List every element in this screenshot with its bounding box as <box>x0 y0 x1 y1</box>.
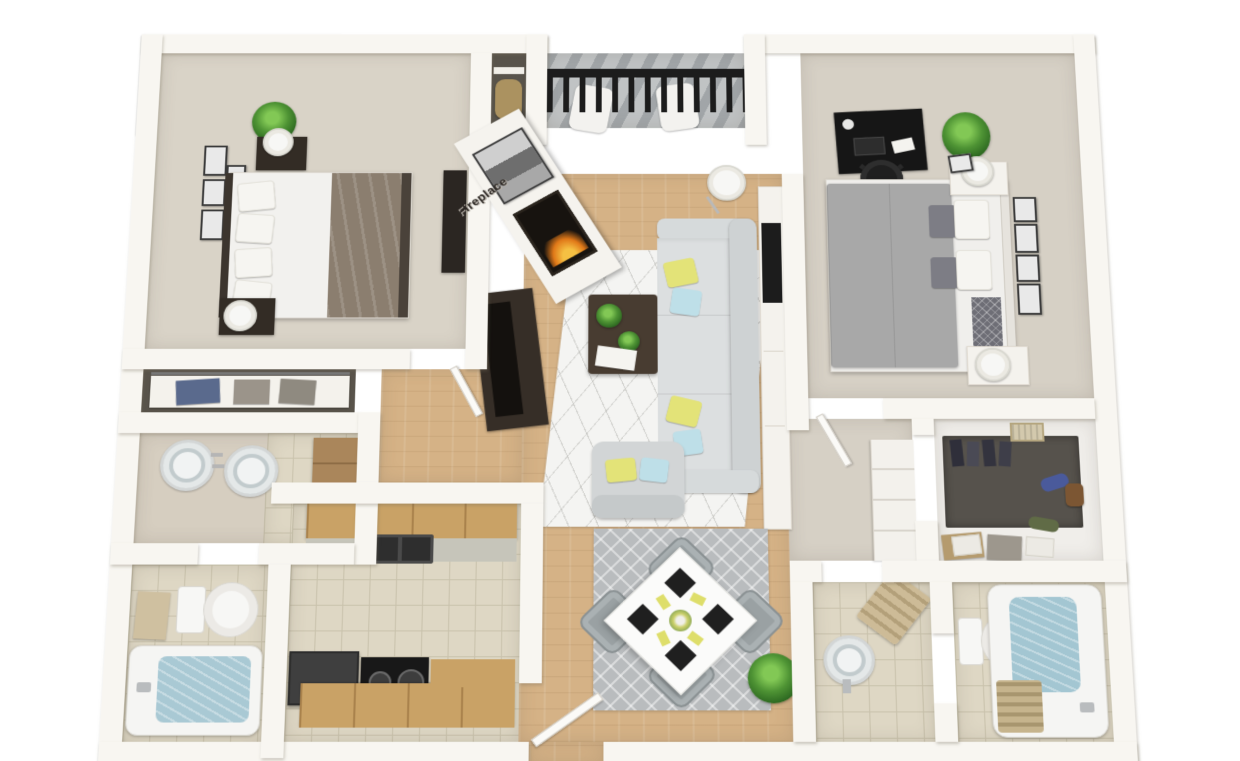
wall-vanity-bottom <box>110 543 198 564</box>
floorplan-scene: Fireplace <box>0 0 1240 761</box>
sink-faucet <box>212 464 224 468</box>
balcony-railing <box>547 71 745 113</box>
placemat <box>664 568 696 598</box>
bath-water <box>1009 597 1081 692</box>
floor-lamp <box>707 165 746 201</box>
bed-pillow <box>234 247 272 278</box>
table-plant <box>596 304 622 328</box>
placemat <box>665 640 697 671</box>
napkin-yellow <box>656 630 670 646</box>
wall-bedroom1-bottom <box>122 349 410 369</box>
throw-pillow-yellow <box>605 457 638 483</box>
bathtub <box>125 645 264 735</box>
lower-cabinets <box>299 683 515 727</box>
table-lamp <box>974 348 1011 381</box>
wall-art-frame <box>1015 255 1040 282</box>
handbag <box>1065 483 1084 506</box>
placemat <box>702 604 734 635</box>
wall-vanity-bottom <box>258 543 354 564</box>
wall-bedroom2-bottom <box>883 398 1095 419</box>
napkin-yellow <box>687 631 704 646</box>
sink-faucet <box>843 679 852 693</box>
pedestal-sink <box>823 635 876 685</box>
railing-top-bar <box>547 69 744 78</box>
wall-kitchen-right <box>519 504 543 684</box>
wall-art-frame <box>1017 284 1042 315</box>
counter-right <box>430 659 515 687</box>
bed-bedroom1 <box>223 172 412 318</box>
basket <box>1010 423 1045 442</box>
sink-divider <box>398 536 403 561</box>
bed-pillow <box>235 213 275 244</box>
storage-box-gray <box>987 534 1022 561</box>
sink-faucet <box>211 453 223 457</box>
tub-faucet <box>136 682 151 692</box>
linen-shelves <box>870 440 917 561</box>
wall-walkin-left <box>915 521 939 561</box>
taupe-duvet <box>327 173 402 317</box>
closet-rod <box>151 372 350 375</box>
storage-box-white <box>1025 536 1054 558</box>
desk-mug <box>842 119 854 130</box>
storage-bin-gray <box>278 379 316 405</box>
hanging-clothes <box>967 441 979 466</box>
wall-art-frame <box>200 210 225 241</box>
toilet-tank <box>175 586 206 633</box>
wall-balcony-right <box>744 34 767 144</box>
wall-art-frame <box>203 146 228 176</box>
photo-frame <box>947 153 973 173</box>
tv <box>761 223 782 303</box>
wall-right-rooms-top <box>882 561 1127 582</box>
placemat <box>627 604 659 635</box>
bed-pillow <box>953 200 990 239</box>
armchair <box>592 442 685 518</box>
throw-pillow-blue <box>669 287 702 316</box>
armchair-back <box>592 495 685 518</box>
wall-walkin-left <box>912 419 935 435</box>
throw-pillow-blue <box>639 457 670 483</box>
console-drawer-line <box>765 425 785 426</box>
toilet <box>175 582 257 635</box>
bathtub <box>987 584 1110 738</box>
storage-bin-blue <box>176 378 220 405</box>
fire-flames <box>539 226 588 267</box>
hanging-clothes <box>982 439 997 466</box>
wall-linen-closet-bottom <box>118 412 359 433</box>
coffee-table <box>588 295 658 374</box>
bed-bedroom2 <box>826 179 1018 372</box>
wall-outer-bottom <box>603 742 1138 761</box>
accent-pillow-gray <box>928 205 957 237</box>
wall-powder-bath2-divider <box>930 582 954 633</box>
tv <box>483 302 524 418</box>
napkin-yellow <box>656 594 672 610</box>
towel <box>133 591 171 640</box>
wall-outer-top-left <box>141 34 548 53</box>
napkin-yellow <box>689 592 706 606</box>
magazine <box>595 345 637 370</box>
wall-dining-right <box>790 582 816 742</box>
desk-laptop <box>853 137 885 156</box>
apartment-floorplan: Fireplace <box>98 34 1138 761</box>
storage-bin-gray <box>233 380 270 404</box>
wall-outer-bottom <box>98 742 529 761</box>
console-drawer-line <box>764 351 784 352</box>
upper-cabinets <box>306 504 517 539</box>
accent-pillow-gray <box>930 257 959 288</box>
wall-art-frame <box>1014 224 1039 253</box>
wall-art-frame <box>202 179 227 206</box>
wall-art-frame <box>1013 197 1038 222</box>
linen-closet-shelf <box>149 376 349 408</box>
bath-mat-slats <box>996 680 1044 732</box>
wall-powder-bath2-divider <box>934 703 958 741</box>
bed-pillow <box>237 180 276 212</box>
wall-kitchen-top <box>271 482 544 503</box>
closet-shelf <box>494 67 525 74</box>
hanging-clothes <box>999 441 1012 467</box>
storage-box-white <box>951 534 982 556</box>
wall-outer-top-right <box>744 34 1096 53</box>
tub-faucet <box>1080 702 1095 712</box>
toilet-bowl <box>202 582 260 637</box>
bath-water <box>155 656 251 722</box>
sofa-back <box>729 219 761 494</box>
wall-right-rooms-top <box>790 561 822 582</box>
bed-pillow <box>956 250 993 290</box>
desk-papers <box>891 137 915 153</box>
